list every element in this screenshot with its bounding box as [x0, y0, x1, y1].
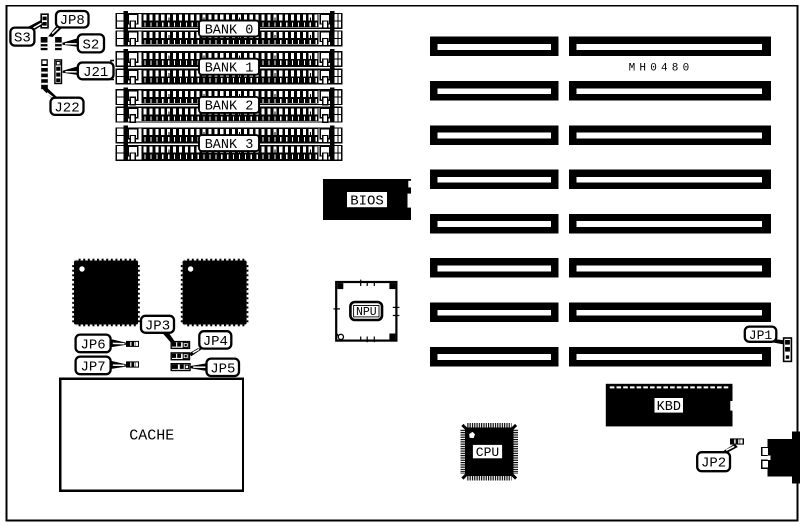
svg-text:JP8: JP8	[60, 13, 85, 29]
svg-text:NPU: NPU	[356, 306, 377, 319]
svg-text:JP2: JP2	[701, 456, 726, 472]
svg-text:JP3: JP3	[145, 318, 170, 334]
svg-text:BANK 2: BANK 2	[205, 100, 254, 115]
svg-text:KBD: KBD	[657, 400, 681, 415]
svg-text:MH0480: MH0480	[629, 62, 694, 74]
svg-text:CACHE: CACHE	[129, 427, 174, 444]
svg-text:BIOS: BIOS	[350, 193, 384, 209]
svg-text:BANK 0: BANK 0	[205, 23, 254, 38]
svg-text:CPU: CPU	[476, 445, 499, 460]
svg-text:BANK 1: BANK 1	[205, 62, 254, 77]
svg-text:J21: J21	[83, 65, 108, 81]
svg-text:JP5: JP5	[210, 361, 235, 377]
svg-text:JP7: JP7	[80, 359, 105, 375]
svg-text:JP1: JP1	[749, 328, 773, 343]
svg-text:S3: S3	[14, 31, 31, 47]
svg-text:JP6: JP6	[80, 337, 105, 353]
svg-text:BANK 3: BANK 3	[205, 138, 254, 153]
svg-text:J22: J22	[54, 100, 79, 116]
svg-text:S2: S2	[82, 37, 99, 53]
svg-text:JP4: JP4	[203, 334, 228, 350]
